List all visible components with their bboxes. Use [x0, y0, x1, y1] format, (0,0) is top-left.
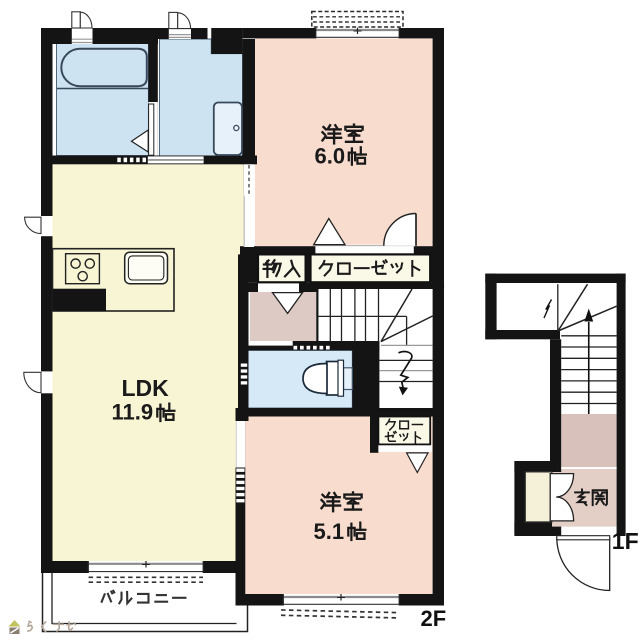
svg-text:11.9: 11.9 — [112, 400, 154, 425]
svg-text:5.1: 5.1 — [314, 519, 345, 544]
svg-text:6.0: 6.0 — [315, 143, 346, 168]
svg-text:LDK: LDK — [122, 375, 170, 401]
svg-text:2F: 2F — [421, 606, 447, 631]
svg-text:1F: 1F — [612, 528, 639, 554]
